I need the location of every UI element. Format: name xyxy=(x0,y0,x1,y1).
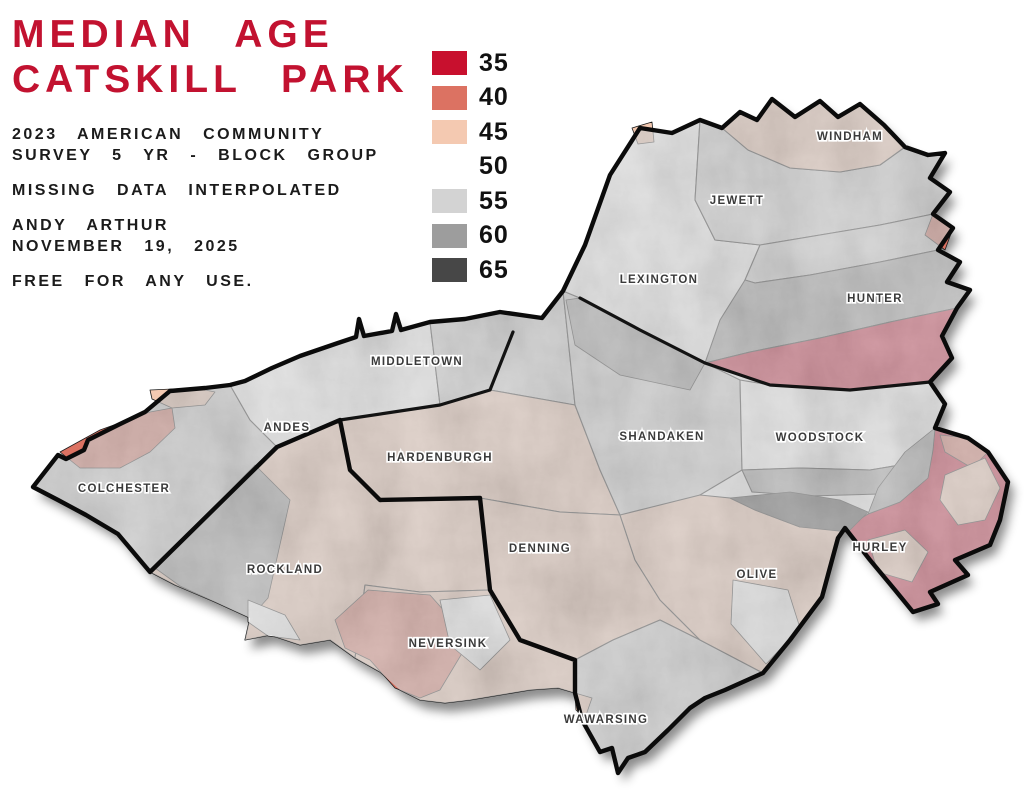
legend: 35404550556065 xyxy=(432,46,509,288)
legend-row-35: 35 xyxy=(432,46,509,81)
legend-label-40: 40 xyxy=(479,83,509,112)
legend-label-50: 50 xyxy=(479,152,509,181)
note: MISSING DATA INTERPOLATED xyxy=(12,180,409,201)
legend-row-50: 50 xyxy=(432,150,509,185)
legend-swatch-40 xyxy=(432,86,467,110)
map-label-neversink: NEVERSINK xyxy=(409,638,488,650)
credit-author: ANDY ARTHUR xyxy=(12,215,409,236)
map-label-olive: OLIVE xyxy=(736,569,777,581)
map-label-hardenburgh: HARDENBURGH xyxy=(387,452,493,464)
legend-row-65: 65 xyxy=(432,253,509,288)
map-label-shandaken: SHANDAKEN xyxy=(619,431,704,443)
title-line-2: CATSKILL PARK xyxy=(12,57,409,102)
map-label-denning: DENNING xyxy=(509,543,571,555)
license: FREE FOR ANY USE. xyxy=(12,271,409,292)
map-label-lexington: LEXINGTON xyxy=(620,274,699,286)
credit-date: NOVEMBER 19, 2025 xyxy=(12,236,409,257)
legend-row-60: 60 xyxy=(432,219,509,254)
legend-label-65: 65 xyxy=(479,256,509,285)
legend-label-45: 45 xyxy=(479,118,509,147)
legend-label-60: 60 xyxy=(479,221,509,250)
map-label-andes: ANDES xyxy=(264,422,311,434)
info-panel: MEDIAN AGE CATSKILL PARK 2023 AMERICAN C… xyxy=(12,12,409,292)
legend-row-55: 55 xyxy=(432,184,509,219)
map-label-wawarsing: WAWARSING xyxy=(564,714,649,726)
subtitle: 2023 AMERICAN COMMUNITY SURVEY 5 YR - BL… xyxy=(12,124,409,166)
map-label-woodstock: WOODSTOCK xyxy=(776,432,865,444)
page-title: MEDIAN AGE CATSKILL PARK xyxy=(12,12,409,102)
map-label-rockland: ROCKLAND xyxy=(247,564,323,576)
legend-swatch-45 xyxy=(432,120,467,144)
map-label-jewett: JEWETT xyxy=(710,195,764,207)
legend-swatch-35 xyxy=(432,51,467,75)
map-label-colchester: COLCHESTER xyxy=(78,483,170,495)
legend-swatch-55 xyxy=(432,189,467,213)
legend-swatch-50 xyxy=(432,155,467,179)
title-line-1: MEDIAN AGE xyxy=(12,12,409,57)
subtitle-line-1: 2023 AMERICAN COMMUNITY xyxy=(12,124,409,145)
legend-label-35: 35 xyxy=(479,49,509,78)
legend-swatch-65 xyxy=(432,258,467,282)
map-label-hurley: HURLEY xyxy=(852,542,907,554)
map-label-middletown: MIDDLETOWN xyxy=(371,356,463,368)
legend-label-55: 55 xyxy=(479,187,509,216)
map-label-windham: WINDHAM xyxy=(817,131,883,143)
subtitle-line-2: SURVEY 5 YR - BLOCK GROUP xyxy=(12,145,409,166)
legend-swatch-60 xyxy=(432,224,467,248)
map-label-hunter: HUNTER xyxy=(847,293,903,305)
credit: ANDY ARTHUR NOVEMBER 19, 2025 xyxy=(12,215,409,257)
legend-row-45: 45 xyxy=(432,115,509,150)
legend-row-40: 40 xyxy=(432,81,509,116)
